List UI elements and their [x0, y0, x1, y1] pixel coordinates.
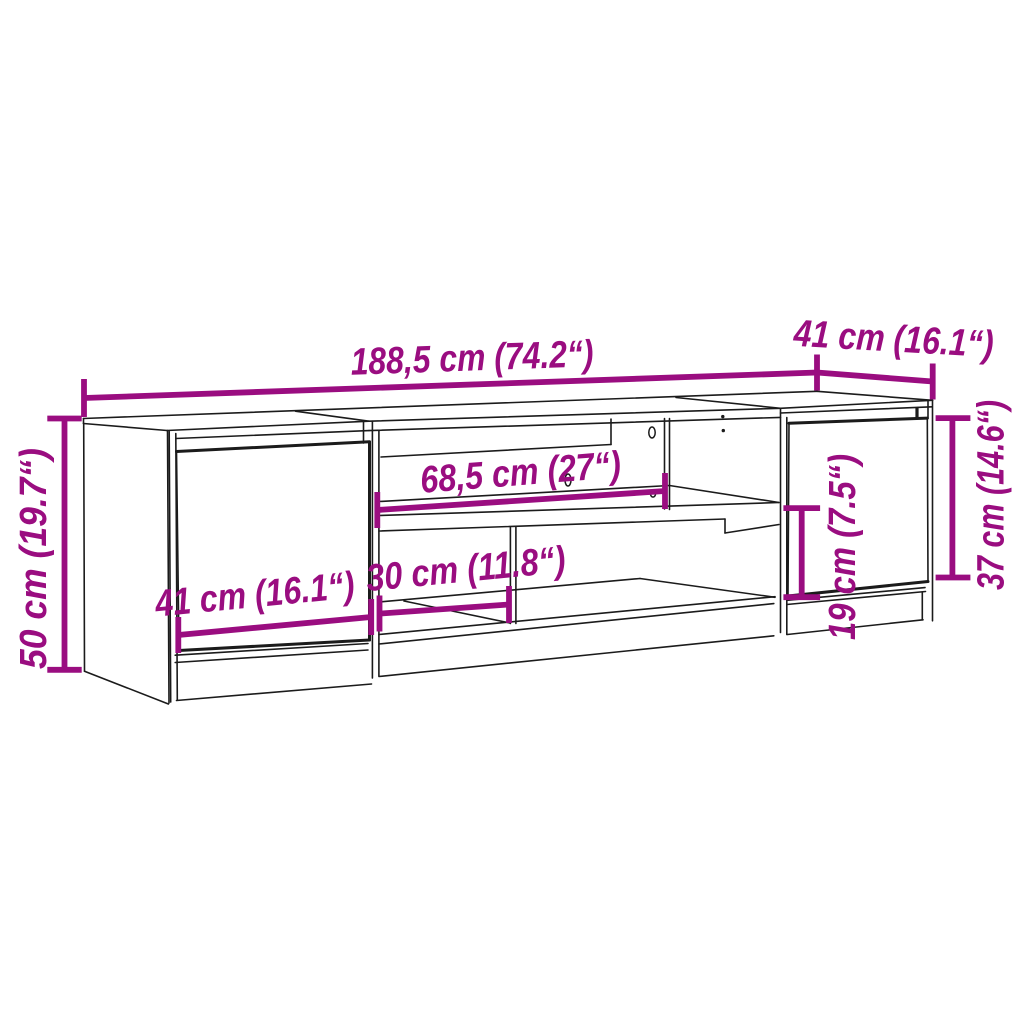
svg-text:41 cm (16.1“): 41 cm (16.1“) [152, 565, 356, 626]
svg-text:30 cm (11.8“): 30 cm (11.8“) [364, 539, 567, 600]
svg-text:41 cm (16.1“): 41 cm (16.1“) [792, 313, 995, 366]
svg-text:50 cm (19.7“): 50 cm (19.7“) [13, 448, 55, 669]
svg-text:188,5 cm (74.2“): 188,5 cm (74.2“) [350, 333, 594, 383]
svg-text:37 cm (14.6“): 37 cm (14.6“) [971, 400, 1013, 590]
svg-text:19 cm (7.5“): 19 cm (7.5“) [822, 454, 864, 640]
